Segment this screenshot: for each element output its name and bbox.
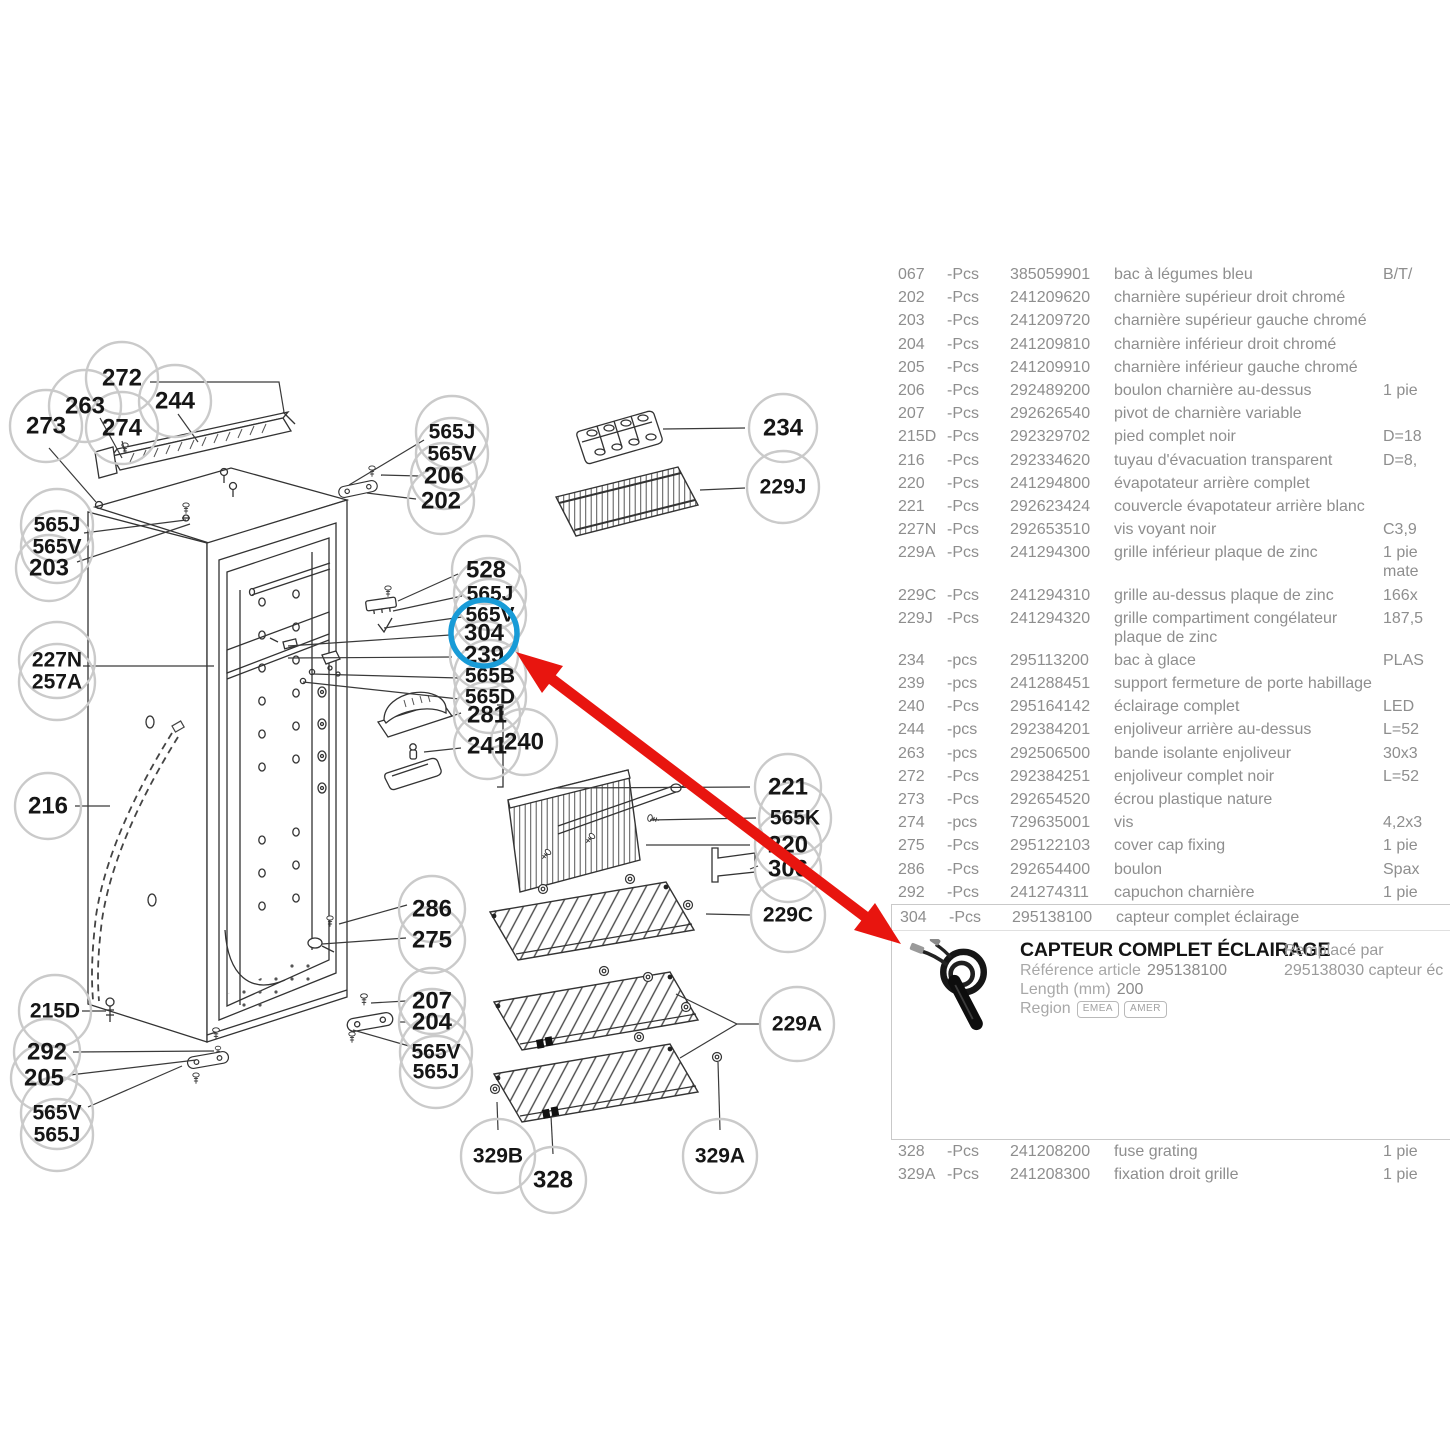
callout-label[interactable]: 274 [102, 415, 143, 442]
region-badge: EMEA [1077, 1001, 1119, 1018]
cell-qty: -pcs [947, 744, 1010, 763]
cell-qty: -Pcs [947, 474, 1010, 493]
ice-tray-234 [577, 411, 662, 463]
cell-description: charnière inférieur gauche chromé [1114, 358, 1383, 377]
bracket-306 [712, 848, 755, 882]
cell-description: charnière supérieur gauche chromé [1114, 311, 1383, 330]
cell-article: 241274311 [1010, 883, 1114, 902]
cell-info: 1 pie [1383, 883, 1450, 902]
cell-article: 295113200 [1010, 651, 1114, 670]
cell-info: 1 pie [1383, 1165, 1450, 1184]
cell-qty: -Pcs [947, 497, 1010, 516]
cell-article: 241294310 [1010, 586, 1114, 605]
cell-qty: -Pcs [947, 860, 1010, 879]
table-row[interactable]: 205 -Pcs 241209910 charnière inférieur g… [890, 356, 1450, 379]
callout-label[interactable]: 565V [32, 1102, 81, 1125]
cell-pos: 244 [890, 720, 947, 739]
cell-pos: 292 [890, 883, 947, 902]
callout-label[interactable]: 229A [772, 1013, 822, 1036]
cell-qty: -Pcs [947, 520, 1010, 539]
cell-pos: 273 [890, 790, 947, 809]
table-row[interactable]: 286 -Pcs 292654400 boulon Spax [890, 858, 1450, 881]
shelves-229A [491, 967, 722, 1123]
cell-info: C3,9 [1383, 520, 1450, 539]
table-row[interactable]: 229J -Pcs 241294320 grille compartiment … [890, 607, 1450, 649]
cell-pos: 215D [890, 427, 947, 446]
field-label: Region [1020, 1000, 1071, 1017]
callout-label[interactable]: 257A [32, 671, 82, 694]
table-row[interactable]: 067 -Pcs 385059901 bac à légumes bleu B/… [890, 263, 1450, 286]
cell-description: enjoliveur arrière au-dessus [1114, 720, 1383, 739]
callout-label[interactable]: 227N [32, 649, 82, 672]
cell-info: 1 pie [1383, 836, 1450, 855]
callout-label[interactable]: 206 [424, 463, 464, 490]
cell-info: B/T/ [1383, 265, 1450, 284]
cell-qty: -Pcs [947, 381, 1010, 400]
cell-pos: 328 [890, 1142, 947, 1161]
callout-label[interactable]: 329A [695, 1145, 745, 1168]
table-row[interactable]: 272 -Pcs 292384251 enjoliveur complet no… [890, 765, 1450, 788]
parts-table: 067 -Pcs 385059901 bac à légumes bleu B/… [890, 0, 1450, 1450]
table-row[interactable]: 216 -Pcs 292334620 tuyau d'évacuation tr… [890, 449, 1450, 472]
cell-qty: -Pcs [947, 404, 1010, 423]
cell-pos: 221 [890, 497, 947, 516]
cabinet-body [88, 468, 347, 1042]
table-row[interactable]: 227N -Pcs 292653510 vis voyant noir C3,9 [890, 518, 1450, 541]
cell-pos: 206 [890, 381, 947, 400]
cell-info: 4,2x3 [1383, 813, 1450, 832]
freezer-grille-229J [556, 467, 698, 536]
cell-pos: 275 [890, 836, 947, 855]
cell-info: D=8, [1383, 451, 1450, 470]
cell-pos: 229A [890, 543, 947, 562]
cell-info: L=52 [1383, 767, 1450, 786]
callout-label[interactable]: 286 [412, 896, 452, 923]
cell-info: 1 pie [1383, 381, 1450, 400]
callout-label[interactable]: 306 [768, 856, 808, 883]
cell-description: évapotateur arrière complet [1114, 474, 1383, 493]
cell-pos: 067 [890, 265, 947, 284]
callout-label[interactable]: 220 [768, 832, 808, 859]
cell-qty: -pcs [947, 813, 1010, 832]
table-row[interactable]: 328 -Pcs 241208200 fuse grating 1 pie [890, 1140, 1450, 1163]
cell-article: 241208300 [1010, 1165, 1114, 1184]
callout-label[interactable]: 528 [466, 557, 506, 584]
cell-qty: -Pcs [947, 836, 1010, 855]
cell-article: 292489200 [1010, 381, 1114, 400]
cell-article: 292654400 [1010, 860, 1114, 879]
cell-info: D=18 [1383, 427, 1450, 446]
cell-qty: -Pcs [947, 311, 1010, 330]
detail-panel: 304 -Pcs 295138100 capteur complet éclai… [891, 904, 1450, 1140]
callout-label[interactable]: 273 [26, 413, 66, 440]
cell-description: bac à glace [1114, 651, 1383, 670]
region-badge: AMER [1124, 1001, 1167, 1018]
callout-label[interactable]: 216 [28, 793, 68, 820]
cell-pos: 286 [890, 860, 947, 879]
table-row[interactable]: 204 -Pcs 241209810 charnière inférieur d… [890, 333, 1450, 356]
cell-qty: -Pcs [947, 335, 1010, 354]
cell-article: 292384201 [1010, 720, 1114, 739]
cell-article: 292506500 [1010, 744, 1114, 763]
cell-article: 241294800 [1010, 474, 1114, 493]
cell-pos: 229C [890, 586, 947, 605]
cell-article: 241209720 [1010, 311, 1114, 330]
cell-pos: 229J [890, 609, 947, 628]
cell-description: tuyau d'évacuation transparent [1114, 451, 1383, 470]
callout-label[interactable]: 329B [473, 1145, 523, 1168]
cell-qty: -Pcs [947, 790, 1010, 809]
cell-description: pivot de charnière variable [1114, 404, 1383, 423]
cell-description: grille compartiment congélateur plaque d… [1114, 609, 1383, 647]
cell-qty: -Pcs [947, 609, 1010, 628]
cell-article: 241208200 [1010, 1142, 1114, 1161]
field-label: Référence article [1020, 962, 1141, 979]
cell-description: écrou plastique nature [1114, 790, 1383, 809]
cell-description: fixation droit grille [1114, 1165, 1383, 1184]
cell-description: boulon [1114, 860, 1383, 879]
table-row-selected[interactable]: 304 -Pcs 295138100 capteur complet éclai… [892, 905, 1450, 931]
callout-label[interactable]: 215D [30, 1000, 80, 1023]
cell-qty: -Pcs [947, 427, 1010, 446]
replaced-by-value[interactable]: 295138030 capteur éc [1284, 961, 1443, 981]
cell-description: éclairage complet [1114, 697, 1383, 716]
cell-qty: -Pcs [947, 767, 1010, 786]
cell-info: Spax [1383, 860, 1450, 879]
cell-pos: 203 [890, 311, 947, 330]
table-row[interactable]: 240 -Pcs 295164142 éclairage complet LED [890, 695, 1450, 718]
cell-pos: 207 [890, 404, 947, 423]
cell-description: support fermeture de porte habillage [1114, 674, 1383, 693]
callout-label[interactable]: 221 [768, 774, 808, 801]
cell-article: 295138100 [1012, 908, 1116, 927]
cell-article: 241209620 [1010, 288, 1114, 307]
cell-description: grille au-dessus plaque de zinc [1114, 586, 1383, 605]
cell-description: fuse grating [1114, 1142, 1383, 1161]
callout-label[interactable]: 328 [533, 1167, 573, 1194]
cell-qty: -Pcs [947, 586, 1010, 605]
callout-label[interactable]: 229J [760, 476, 807, 499]
table-row[interactable]: 221 -Pcs 292623424 couvercle évapotateur… [890, 495, 1450, 518]
cell-info: 30x3 [1383, 744, 1450, 763]
cell-pos: 216 [890, 451, 947, 470]
field-label: Length (mm) [1020, 981, 1111, 998]
callout-label[interactable]: 272 [102, 365, 142, 392]
table-row[interactable]: 202 -Pcs 241209620 charnière supérieur d… [890, 286, 1450, 309]
table-row[interactable]: 292 -Pcs 241274311 capuchon charnière 1 … [890, 881, 1450, 904]
cell-description: bande isolante enjoliveur [1114, 744, 1383, 763]
cell-article: 729635001 [1010, 813, 1114, 832]
cell-info: 166x [1383, 586, 1450, 605]
cell-description: bac à légumes bleu [1114, 265, 1383, 284]
cell-info: 1 pie [1383, 1142, 1450, 1161]
cell-article: 241288451 [1010, 674, 1114, 693]
callout-label[interactable]: 229C [763, 904, 813, 927]
table-row[interactable]: 207 -Pcs 292626540 pivot de charnière va… [890, 402, 1450, 425]
cell-pos: 274 [890, 813, 947, 832]
callout-label[interactable]: 241 [467, 733, 507, 760]
cell-article: 241209910 [1010, 358, 1114, 377]
field-value: 295138100 [1147, 962, 1227, 979]
callout-label[interactable]: 240 [504, 729, 544, 756]
cell-article: 292329702 [1010, 427, 1114, 446]
cell-info: LED [1383, 697, 1450, 716]
cell-info: 1 pie mate [1383, 543, 1450, 581]
cell-pos: 204 [890, 335, 947, 354]
cell-pos: 227N [890, 520, 947, 539]
cell-pos: 263 [890, 744, 947, 763]
cell-qty: -pcs [947, 651, 1010, 670]
table-row[interactable]: 275 -Pcs 295122103 cover cap fixing 1 pi… [890, 834, 1450, 857]
callout-label[interactable]: 202 [421, 488, 461, 515]
callout-label[interactable]: 205 [24, 1065, 64, 1092]
cell-article: 292654520 [1010, 790, 1114, 809]
cell-pos: 304 [892, 908, 949, 927]
cell-qty: -pcs [947, 674, 1010, 693]
cell-qty: -Pcs [947, 265, 1010, 284]
table-row[interactable]: 229A -Pcs 241294300 grille inférieur pla… [890, 541, 1450, 583]
cell-qty: -Pcs [947, 883, 1010, 902]
cell-article: 241294300 [1010, 543, 1114, 562]
cell-qty: -pcs [947, 720, 1010, 739]
table-row[interactable]: 229C -Pcs 241294310 grille au-dessus pla… [890, 583, 1450, 606]
table-row[interactable]: 234 -pcs 295113200 bac à glace PLAS [890, 649, 1450, 672]
cell-qty: -Pcs [947, 358, 1010, 377]
cell-description: couvercle évapotateur arrière blanc [1114, 497, 1383, 516]
cell-article: 241294320 [1010, 609, 1114, 628]
table-row[interactable]: 203 -Pcs 241209720 charnière supérieur g… [890, 309, 1450, 332]
cell-article: 292653510 [1010, 520, 1114, 539]
table-row[interactable]: 273 -Pcs 292654520 écrou plastique natur… [890, 788, 1450, 811]
cell-pos: 239 [890, 674, 947, 693]
cell-article: 292334620 [1010, 451, 1114, 470]
callout-label[interactable]: 565J [34, 1124, 81, 1147]
table-row[interactable]: 220 -Pcs 241294800 évapotateur arrière c… [890, 472, 1450, 495]
part-photo [902, 939, 1014, 1031]
field-value: 200 [1117, 981, 1144, 998]
cell-pos: 220 [890, 474, 947, 493]
table-row[interactable]: 215D -Pcs 292329702 pied complet noir D=… [890, 425, 1450, 448]
cell-pos: 240 [890, 697, 947, 716]
cell-article: 295164142 [1010, 697, 1114, 716]
table-row[interactable]: 263 -pcs 292506500 bande isolante enjoli… [890, 742, 1450, 765]
cell-qty: -Pcs [947, 697, 1010, 716]
cell-info: PLAS [1383, 651, 1450, 670]
cell-qty: -Pcs [947, 288, 1010, 307]
callout-label[interactable]: 203 [29, 555, 69, 582]
cell-description: vis [1114, 813, 1383, 832]
cell-info: L=52 [1383, 720, 1450, 739]
cell-description: capuchon charnière [1114, 883, 1383, 902]
cell-description: vis voyant noir [1114, 520, 1383, 539]
cell-description: boulon charnière au-dessus [1114, 381, 1383, 400]
callout-label[interactable]: 275 [412, 927, 452, 954]
callout-label[interactable]: 565J [429, 421, 476, 444]
cell-pos: 329A [890, 1165, 947, 1184]
callout-label[interactable]: 565J [34, 514, 81, 537]
table-row[interactable]: 274 -pcs 729635001 vis 4,2x3 [890, 811, 1450, 834]
cell-article: 241209810 [1010, 335, 1114, 354]
cell-description: charnière supérieur droit chromé [1114, 288, 1383, 307]
cell-description: pied complet noir [1114, 427, 1383, 446]
table-row[interactable]: 206 -Pcs 292489200 boulon charnière au-d… [890, 379, 1450, 402]
callout-label[interactable]: 565K [770, 807, 820, 830]
cell-description: cover cap fixing [1114, 836, 1383, 855]
replaced-by-label: Remplacé par [1284, 941, 1443, 961]
callout-label[interactable]: 244 [155, 388, 196, 415]
cell-qty: -Pcs [947, 451, 1010, 470]
table-row[interactable]: 329A -Pcs 241208300 fixation droit grill… [890, 1163, 1450, 1186]
callout-label[interactable]: 292 [27, 1039, 67, 1066]
cell-pos: 234 [890, 651, 947, 670]
cell-pos: 272 [890, 767, 947, 786]
cell-article: 292626540 [1010, 404, 1114, 423]
cell-qty: -Pcs [947, 1165, 1010, 1184]
cell-article: 295122103 [1010, 836, 1114, 855]
cell-description: enjoliveur complet noir [1114, 767, 1383, 786]
table-row[interactable]: 244 -pcs 292384201 enjoliveur arrière au… [890, 718, 1450, 741]
cell-description: capteur complet éclairage [1116, 908, 1385, 927]
cell-pos: 205 [890, 358, 947, 377]
table-row[interactable]: 239 -pcs 241288451 support fermeture de … [890, 672, 1450, 695]
cell-article: 292623424 [1010, 497, 1114, 516]
cell-description: charnière inférieur droit chromé [1114, 335, 1383, 354]
callout-label[interactable]: 263 [65, 393, 105, 420]
callout-label[interactable]: 234 [763, 415, 804, 442]
cell-description: grille inférieur plaque de zinc [1114, 543, 1383, 562]
lamp-assembly [378, 692, 452, 789]
callout-label[interactable]: 565J [413, 1061, 460, 1084]
cell-article: 385059901 [1010, 265, 1114, 284]
cell-qty: -Pcs [947, 1142, 1010, 1161]
cell-qty: -Pcs [949, 908, 1012, 927]
latch-528 [365, 586, 397, 632]
cell-article: 292384251 [1010, 767, 1114, 786]
cell-info: 187,5 [1383, 609, 1450, 628]
callout-label[interactable]: 204 [412, 1009, 453, 1036]
cell-pos: 202 [890, 288, 947, 307]
callout-label[interactable]: 281 [467, 702, 507, 729]
cell-qty: -Pcs [947, 543, 1010, 562]
